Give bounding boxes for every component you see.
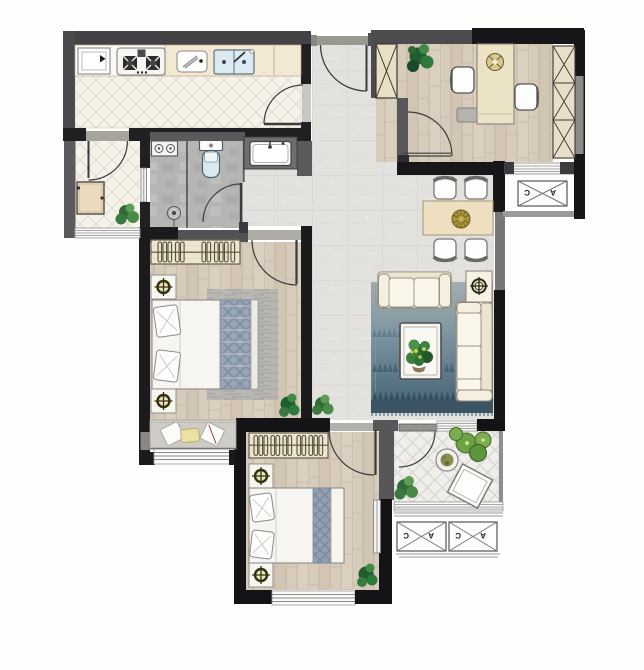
- svg-text:A: A: [550, 188, 556, 197]
- svg-text:C: C: [455, 531, 461, 540]
- svg-text:A: A: [428, 531, 434, 540]
- svg-text:C: C: [403, 531, 409, 540]
- svg-text:C: C: [524, 188, 530, 197]
- svg-text:A: A: [480, 531, 486, 540]
